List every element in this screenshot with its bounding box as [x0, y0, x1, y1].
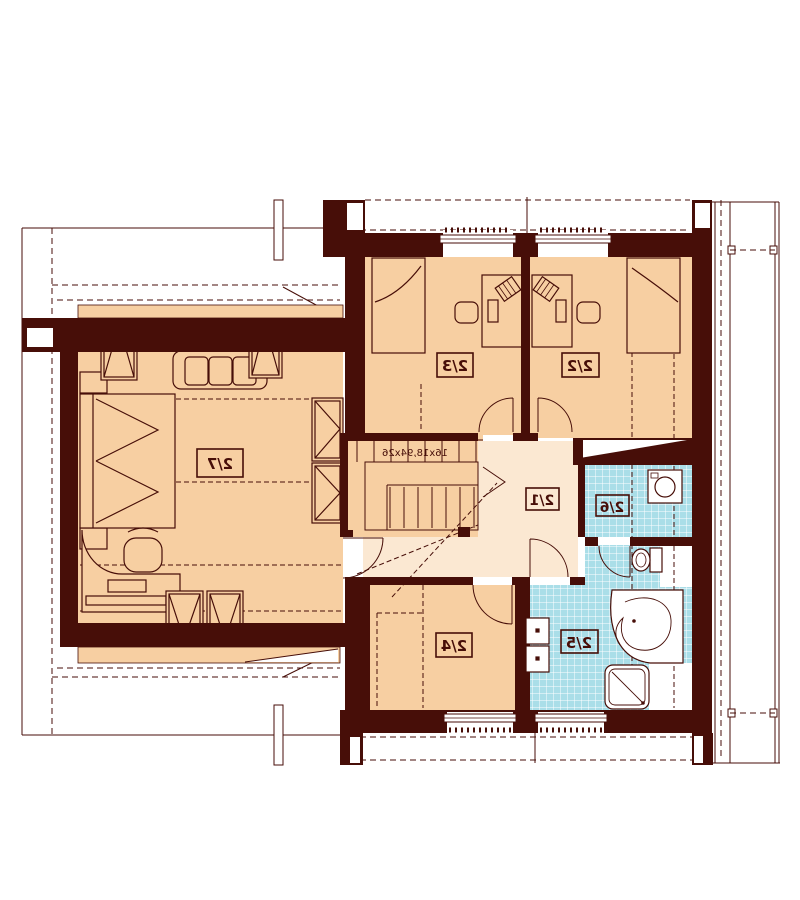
- corridor-floor: [363, 537, 578, 577]
- room-label-2-7: 2/7: [207, 455, 233, 473]
- room-label-2-6: 2/6: [600, 500, 625, 516]
- room-label-2-4: 2/4: [441, 637, 467, 655]
- floor-plan-canvas: 2/7 2/3 2/2 2/1 2/6 2/5 2/4 16x18,94x26: [0, 0, 800, 900]
- floor-strip-top: [78, 305, 343, 318]
- desk: [532, 275, 572, 347]
- window-room-2-2: [535, 230, 611, 257]
- room-label-2-3: 2/3: [442, 357, 468, 375]
- chair: [455, 302, 478, 323]
- low-headroom-zone-toilet: [660, 545, 692, 587]
- room-label-2-2: 2/2: [567, 357, 593, 375]
- window-room-2-4: [444, 712, 516, 733]
- stair-newel-post: [458, 527, 470, 537]
- room-label-2-5: 2/5: [566, 634, 592, 652]
- double-bed: [80, 372, 175, 549]
- window-room-2-3: [440, 230, 516, 257]
- low-headroom-zone-shower: [649, 663, 692, 710]
- single-bed: [627, 258, 680, 353]
- single-bed: [372, 258, 425, 353]
- toilet: [632, 548, 662, 572]
- shower-tray: [605, 665, 649, 709]
- room-label-2-1: 2/1: [530, 493, 555, 509]
- chair: [577, 302, 600, 323]
- window-bathroom-2-5: [535, 712, 607, 733]
- washing-machine: [648, 470, 682, 503]
- stair-dimension-text: 16x18,94x26: [382, 448, 448, 459]
- floor-plan-page: 2/7 2/3 2/2 2/1 2/6 2/5 2/4 16x18,94x26: [0, 0, 800, 900]
- desk: [482, 275, 522, 347]
